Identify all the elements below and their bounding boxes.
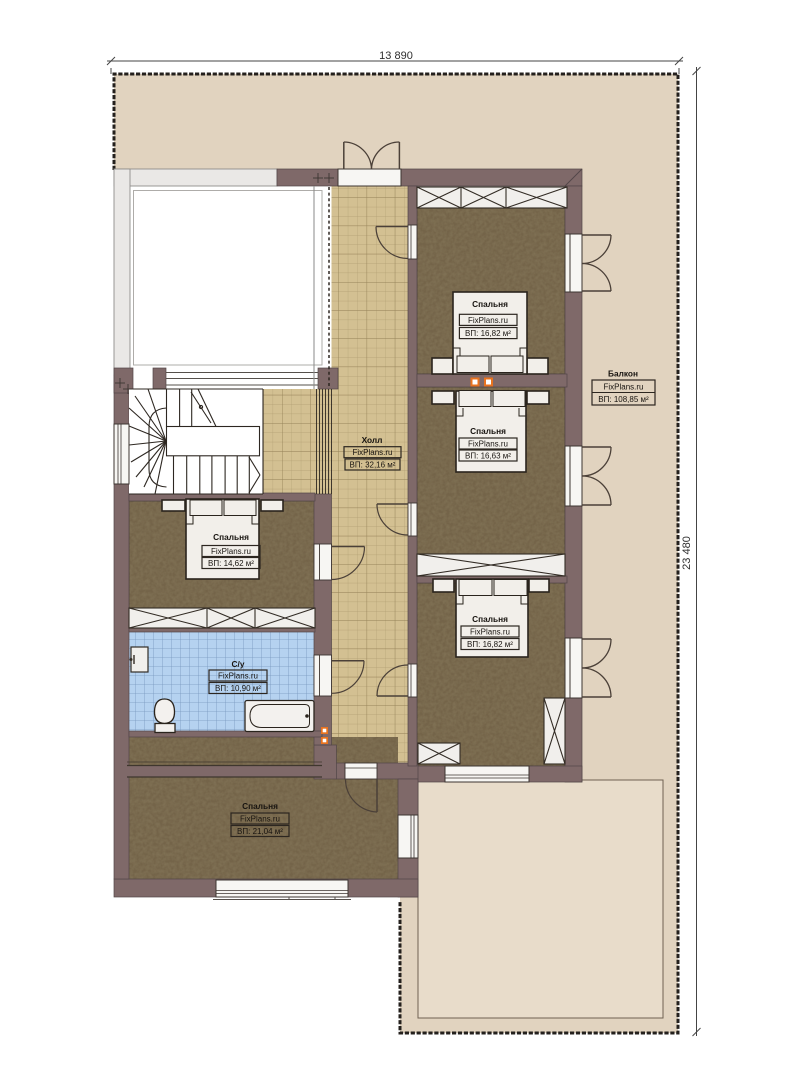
svg-text:ВП: 32,16 м²: ВП: 32,16 м² xyxy=(350,461,396,470)
svg-text:ВП: 14,62 м²: ВП: 14,62 м² xyxy=(208,559,254,568)
svg-text:FixPlans.ru: FixPlans.ru xyxy=(470,628,510,637)
svg-text:13 890: 13 890 xyxy=(379,50,413,62)
svg-text:Спальня: Спальня xyxy=(472,614,508,624)
svg-text:ВП: 16,82 м²: ВП: 16,82 м² xyxy=(465,329,511,338)
svg-text:FixPlans.ru: FixPlans.ru xyxy=(468,316,508,325)
svg-text:Холл: Холл xyxy=(362,435,383,445)
svg-text:FixPlans.ru: FixPlans.ru xyxy=(603,383,643,392)
svg-text:23 480: 23 480 xyxy=(681,536,693,570)
svg-text:FixPlans.ru: FixPlans.ru xyxy=(240,815,280,824)
svg-text:Спальня: Спальня xyxy=(242,801,278,811)
svg-text:Балкон: Балкон xyxy=(608,369,638,379)
svg-text:Спальня: Спальня xyxy=(470,426,506,436)
svg-text:ВП: 21,04 м²: ВП: 21,04 м² xyxy=(237,827,283,836)
svg-text:Спальня: Спальня xyxy=(472,299,508,309)
svg-text:ВП: 16,82 м²: ВП: 16,82 м² xyxy=(467,640,513,649)
svg-text:ВП: 16,63 м²: ВП: 16,63 м² xyxy=(465,452,511,461)
svg-text:ВП: 108,85 м²: ВП: 108,85 м² xyxy=(598,395,649,404)
svg-text:FixPlans.ru: FixPlans.ru xyxy=(218,672,258,681)
svg-text:FixPlans.ru: FixPlans.ru xyxy=(468,440,508,449)
svg-text:ВП: 10,90 м²: ВП: 10,90 м² xyxy=(215,684,261,693)
svg-text:FixPlans.ru: FixPlans.ru xyxy=(211,547,251,556)
svg-text:Спальня: Спальня xyxy=(213,532,249,542)
svg-text:С/у: С/у xyxy=(232,659,245,669)
svg-text:FixPlans.ru: FixPlans.ru xyxy=(352,448,392,457)
